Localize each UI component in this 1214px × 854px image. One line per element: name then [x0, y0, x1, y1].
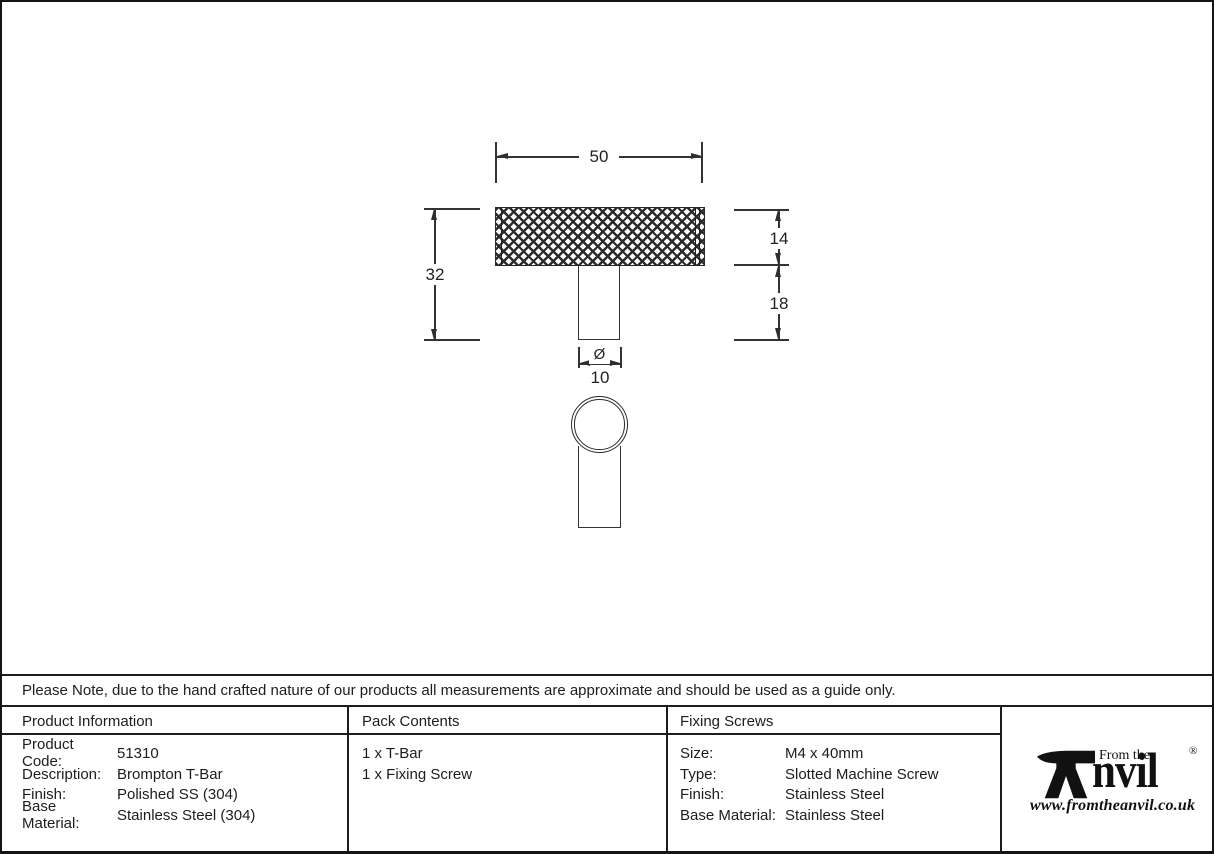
dim-width-label: 50	[579, 146, 619, 167]
table-row: Description: Brompton T-Bar	[22, 764, 255, 785]
knurled-bar	[495, 207, 705, 266]
extension-line	[620, 347, 622, 368]
dimension-arrow-icon	[775, 266, 781, 277]
dimension-arrow-icon	[497, 153, 508, 159]
row-value: 51310	[117, 745, 159, 762]
fixing-screws-table: Size: M4 x 40mm Type: Slotted Machine Sc…	[680, 743, 938, 826]
dimension-arrow-icon	[775, 253, 781, 264]
divider	[2, 733, 1002, 735]
dimension-arrow-icon	[431, 209, 437, 220]
dimension-arrow-icon	[610, 360, 620, 366]
brand-logo: From the nvil ® www.fromtheanvil.co.uk	[1000, 705, 1214, 853]
stem-side-view	[578, 446, 621, 528]
dim-bar-height-label: 14	[760, 228, 798, 249]
row-value: Stainless Steel	[785, 807, 884, 824]
row-label: Base Material:	[680, 807, 785, 824]
extension-line	[495, 142, 497, 183]
table-row: Type: Slotted Machine Screw	[680, 764, 938, 785]
pack-contents-header: Pack Contents	[362, 713, 460, 730]
divider	[347, 705, 349, 853]
stem	[578, 266, 620, 340]
brand-name: nvil	[1092, 741, 1158, 799]
extension-line	[734, 339, 789, 341]
bar-end-cap	[501, 208, 502, 265]
row-label: Base Material:	[22, 798, 117, 832]
row-value: Polished SS (304)	[117, 786, 238, 803]
dim-total-height-label: 32	[415, 264, 455, 285]
extension-line	[701, 142, 703, 183]
table-row: Base Material: Stainless Steel (304)	[22, 805, 255, 826]
row-label: Type:	[680, 766, 785, 783]
product-information-table: Product Code: 51310 Description: Brompto…	[22, 743, 255, 826]
row-label: Description:	[22, 766, 117, 783]
row-value: Brompton T-Bar	[117, 766, 223, 783]
table-row: Finish: Stainless Steel	[680, 784, 938, 805]
divider	[666, 705, 668, 853]
note-text: Please Note, due to the hand crafted nat…	[22, 682, 896, 699]
bar-end-circle-inner	[574, 399, 624, 449]
registered-mark: ®	[1189, 745, 1197, 757]
fixing-screws-header: Fixing Screws	[680, 713, 773, 730]
row-value: M4 x 40mm	[785, 745, 863, 762]
row-label: Finish:	[680, 786, 785, 803]
anvil-icon	[1036, 749, 1096, 801]
product-information-header: Product Information	[22, 713, 153, 730]
list-item: 1 x T-Bar	[362, 743, 472, 764]
bar-end-cap	[699, 208, 700, 265]
diameter-symbol: Ø	[589, 346, 610, 364]
list-item: 1 x Fixing Screw	[362, 764, 472, 785]
row-value: Slotted Machine Screw	[785, 766, 938, 783]
dimension-arrow-icon	[431, 329, 437, 340]
brand-website: www.fromtheanvil.co.uk	[1030, 797, 1195, 815]
row-value: Stainless Steel	[785, 786, 884, 803]
dim-stem-height-label: 18	[760, 293, 798, 314]
row-label: Size:	[680, 745, 785, 762]
table-row: Product Code: 51310	[22, 743, 255, 764]
pack-contents-list: 1 x T-Bar 1 x Fixing Screw	[362, 743, 472, 784]
dim-diameter-label: 10	[584, 367, 616, 388]
dimension-arrow-icon	[775, 328, 781, 339]
spec-sheet-page: 50 32 14 18 Ø 10	[0, 0, 1214, 854]
bar-end-cap	[695, 208, 696, 265]
dimension-arrow-icon	[691, 153, 702, 159]
divider	[2, 674, 1212, 676]
dimension-arrow-icon	[775, 210, 781, 221]
table-row: Size: M4 x 40mm	[680, 743, 938, 764]
row-value: Stainless Steel (304)	[117, 807, 255, 824]
bar-end-circle	[571, 396, 628, 453]
table-row: Base Material: Stainless Steel	[680, 805, 938, 826]
